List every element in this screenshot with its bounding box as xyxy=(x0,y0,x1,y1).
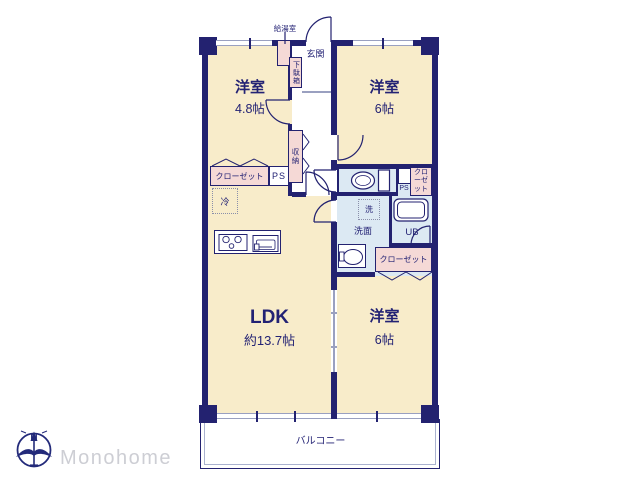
closet-right-bottom-label: クローゼット xyxy=(380,254,428,265)
wall-pillar-top-left xyxy=(199,37,217,55)
refrigerator-space-box: 冷 xyxy=(212,188,238,214)
bedroom-bottom-right-name: 洋室 xyxy=(337,307,432,327)
washbasin-counter xyxy=(338,244,366,268)
refrigerator-label: 冷 xyxy=(220,195,229,208)
sliding-partition-line xyxy=(333,290,335,372)
compass-icon: N xyxy=(16,431,52,467)
bedroom-top-left-name: 洋室 xyxy=(208,78,292,98)
kitchen-counter xyxy=(214,230,281,254)
bedroom-bottom-right-size: 6帖 xyxy=(337,333,432,349)
window-bottom-left xyxy=(217,413,331,419)
wall-pillar-bottom-left xyxy=(199,405,217,423)
closet-left-box: クローゼット xyxy=(210,166,269,186)
ldk-size: 約13.7帖 xyxy=(208,333,331,349)
floorplan-canvas: 下駄箱 収納 クローゼット PS PS クローゼット 冷 洗 クローゼット 洋室… xyxy=(0,0,640,480)
washroom-label: 洗面 xyxy=(337,226,389,238)
compass-north-label: N xyxy=(30,432,37,443)
washer-space-box: 洗 xyxy=(358,199,380,220)
wall-segment xyxy=(337,272,375,277)
window-tick xyxy=(382,38,384,49)
ldk-floor-center xyxy=(292,196,331,413)
pipe-space-left-box: PS xyxy=(269,166,289,186)
wall-segment xyxy=(292,192,306,197)
bedroom-top-left-size: 4.8帖 xyxy=(208,102,292,118)
water-heater-label: 給湯室 xyxy=(263,23,307,34)
closet-left-label: クローゼット xyxy=(216,171,264,182)
wall-pillar-top-right xyxy=(421,37,439,55)
window-tick xyxy=(376,411,378,422)
wall-segment xyxy=(413,40,422,46)
pipe-space-right-label: PS xyxy=(392,184,416,193)
window-tick xyxy=(294,411,296,422)
washer-label: 洗 xyxy=(365,204,373,215)
brand-logo-text: Monohome xyxy=(60,447,172,470)
window-tick xyxy=(256,411,258,422)
pipe-space-left-label: PS xyxy=(272,171,286,181)
shoe-cabinet-label: 下駄箱 xyxy=(291,61,301,85)
entrance-step-line xyxy=(302,91,331,93)
balcony-label: バルコニー xyxy=(202,436,439,449)
wall-segment xyxy=(331,372,337,419)
toilet-room-box xyxy=(337,167,398,196)
wall-right xyxy=(432,54,438,406)
unit-bath-label: UB xyxy=(392,227,432,239)
wall-pillar-bottom-right xyxy=(421,405,439,423)
entrance-label: 玄関 xyxy=(300,49,331,61)
bedroom-top-right-name: 洋室 xyxy=(337,78,432,98)
ldk-name: LDK xyxy=(208,307,331,329)
entrance-door-arc xyxy=(306,17,331,42)
window-tick xyxy=(249,38,251,49)
window-top-left xyxy=(216,40,272,46)
storage-label: 収納 xyxy=(290,148,301,165)
wall-segment xyxy=(331,276,337,290)
bedroom-top-right-size: 6帖 xyxy=(337,102,432,118)
storage-box: 収納 xyxy=(288,130,303,183)
wall-segment xyxy=(389,196,392,247)
window-bottom-right xyxy=(337,413,421,419)
closet-right-bottom-box: クローゼット xyxy=(375,247,432,272)
